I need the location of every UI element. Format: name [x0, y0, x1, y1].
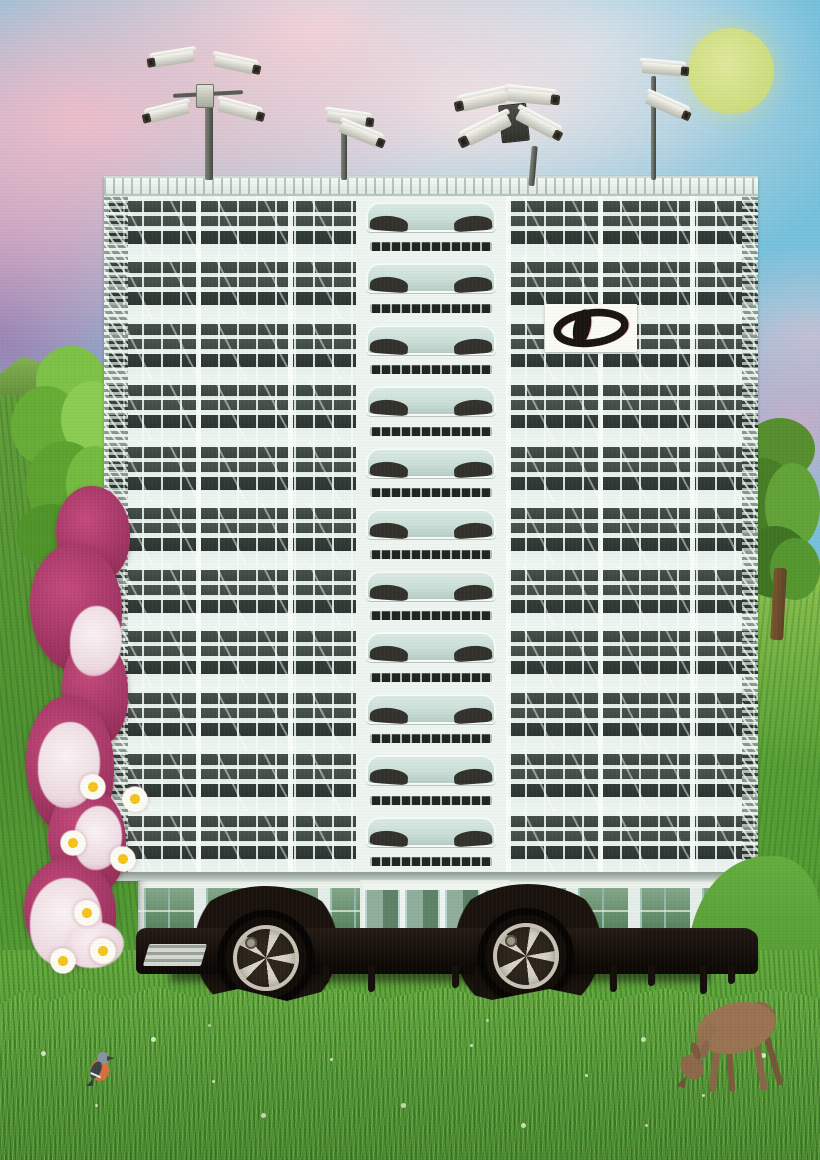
- building-floor: [104, 749, 758, 810]
- cabin-shadow: [454, 276, 493, 294]
- facade-wing-left: [104, 380, 356, 441]
- windshield-bay: [356, 749, 506, 810]
- facade-wing-right: [506, 442, 758, 503]
- facade-wing-left: [104, 319, 356, 380]
- building-floor: [104, 565, 758, 626]
- windshield-bay: [356, 565, 506, 626]
- cabin-shadow: [370, 829, 409, 847]
- building-floor: [104, 811, 758, 872]
- cabin-shadow: [454, 829, 493, 847]
- tree-trunk: [770, 568, 787, 641]
- daisy-flower: [80, 774, 106, 800]
- daisy-flower: [74, 900, 100, 926]
- daisy-flower: [50, 948, 76, 974]
- cabin-shadow: [370, 522, 409, 540]
- cabin-shadow: [454, 461, 493, 479]
- daisy-flower: [122, 786, 148, 812]
- car-grille: [370, 673, 492, 682]
- windshield-bay: [356, 811, 506, 872]
- cabin-shadow: [370, 461, 409, 479]
- car-windshield: [366, 755, 496, 785]
- cctv-camera-icon: [147, 48, 195, 70]
- car-grille: [370, 365, 492, 374]
- car-windshield: [366, 448, 496, 478]
- scaffold-edge-right: [742, 196, 758, 872]
- car-grille: [370, 611, 492, 620]
- cabin-shadow: [370, 768, 409, 786]
- cabin-shadow: [454, 768, 493, 786]
- windshield-bay: [356, 442, 506, 503]
- cctv-camera-icon: [213, 53, 261, 77]
- flower-garland: [22, 486, 148, 968]
- cctv-camera-icon: [217, 98, 265, 124]
- facade-wing-right: [506, 626, 758, 687]
- bird: [84, 1048, 118, 1088]
- building-floor: [104, 257, 758, 318]
- building-floor: [104, 503, 758, 564]
- facade-wing-left: [104, 257, 356, 318]
- facade-wing-right: [506, 565, 758, 626]
- cctv-camera-icon: [641, 60, 688, 79]
- cabin-shadow: [370, 276, 409, 294]
- building-floor: [104, 319, 758, 380]
- cctv-camera-icon: [142, 101, 190, 127]
- car-windshield: [366, 632, 496, 662]
- windshield-bay: [356, 688, 506, 749]
- daisy-flower: [60, 830, 86, 856]
- building-floor: [104, 688, 758, 749]
- cabin-shadow: [370, 399, 409, 417]
- cabin-shadow: [454, 583, 493, 601]
- car-grille: [370, 304, 492, 313]
- facade-wing-right: [506, 503, 758, 564]
- car-grille: [370, 796, 492, 805]
- cabin-shadow: [454, 399, 493, 417]
- apartment-tower: [104, 176, 758, 880]
- windshield-bay: [356, 503, 506, 564]
- cabin-shadow: [454, 645, 493, 663]
- building-floor: [104, 442, 758, 503]
- camera-junction-box: [196, 84, 214, 108]
- car-grille: [370, 242, 492, 251]
- cabin-shadow: [370, 645, 409, 663]
- facade-floors: [104, 196, 758, 872]
- car-windshield: [366, 571, 496, 601]
- car-windshield: [366, 509, 496, 539]
- building-floor: [104, 380, 758, 441]
- cctv-masts: [0, 0, 820, 220]
- daisy-flower: [110, 846, 136, 872]
- cctv-camera-icon: [457, 112, 514, 152]
- car-grille: [370, 488, 492, 497]
- windshield-bay: [356, 257, 506, 318]
- building-on-wheels: [104, 176, 758, 966]
- car-grille: [370, 427, 492, 436]
- car-grille: [370, 550, 492, 559]
- cabin-shadow: [370, 338, 409, 356]
- cabin-shadow: [454, 338, 493, 356]
- cabin-shadow: [454, 706, 493, 724]
- facade-wing-right: [506, 688, 758, 749]
- car-grille: [370, 857, 492, 866]
- building-floor: [104, 626, 758, 687]
- daisy-flower: [90, 938, 116, 964]
- eye-logo: [545, 304, 637, 352]
- car-windshield: [366, 263, 496, 293]
- windshield-bay: [356, 319, 506, 380]
- collage-artwork: [0, 0, 820, 1160]
- deer: [648, 980, 798, 1105]
- car-windshield: [366, 325, 496, 355]
- cabin-shadow: [370, 706, 409, 724]
- windshield-bay: [356, 380, 506, 441]
- car-windshield: [366, 694, 496, 724]
- cabin-shadow: [370, 583, 409, 601]
- facade-wing-right: [506, 380, 758, 441]
- car-windshield: [366, 817, 496, 847]
- cabin-shadow: [454, 522, 493, 540]
- facade-wing-right: [506, 749, 758, 810]
- car-windshield: [366, 386, 496, 416]
- camera-pole: [528, 146, 537, 186]
- car-grille: [370, 734, 492, 743]
- windshield-bay: [356, 626, 506, 687]
- facade-wing-right: [506, 811, 758, 872]
